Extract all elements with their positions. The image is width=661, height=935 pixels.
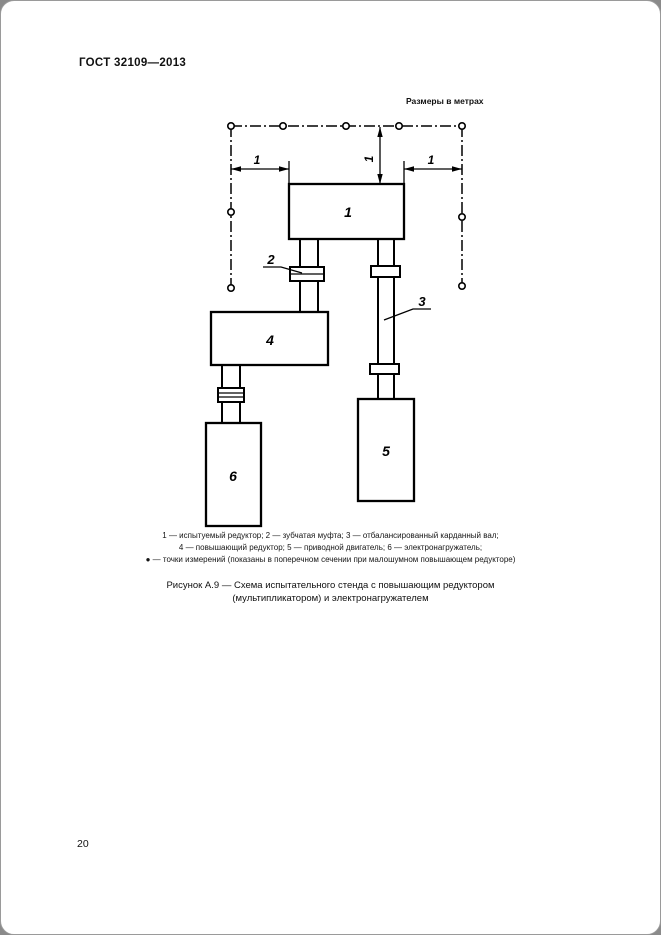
dimension-label-vertical: 1	[362, 155, 376, 162]
legend-line-3: ● — точки измерений (показаны в поперечн…	[1, 554, 660, 566]
dimension-label-right: 1	[428, 153, 435, 167]
callout-3-label: 3	[418, 294, 426, 309]
gear-coupling-2: 2	[263, 239, 324, 312]
cardan-shaft-3: 3	[370, 239, 431, 399]
figure-caption-line-1: Рисунок А.9 — Схема испытательного стенд…	[1, 580, 660, 593]
block-6-electric-loader: 6	[206, 423, 261, 526]
lower-coupling	[218, 365, 244, 423]
dimension-label-left: 1	[254, 153, 261, 167]
document-page: ГОСТ 32109—2013 Размеры в метрах	[0, 0, 661, 935]
block-4-step-up-gearbox: 4	[211, 312, 328, 365]
figure-legend: 1 — испытуемый редуктор; 2 — зубчатая му…	[1, 530, 660, 566]
block-5-label: 5	[382, 443, 390, 459]
callout-2-label: 2	[266, 252, 275, 267]
figure-caption-line-2: (мультипликатором) и электронагружателем	[1, 593, 660, 606]
block-1-tested-gearbox: 1	[289, 184, 404, 239]
legend-line-1: 1 — испытуемый редуктор; 2 — зубчатая му…	[1, 530, 660, 542]
test-stand-diagram: 1 1 1 1 2	[1, 1, 661, 935]
block-1-label: 1	[344, 204, 352, 220]
figure-caption: Рисунок А.9 — Схема испытательного стенд…	[1, 580, 660, 605]
page-number: 20	[77, 838, 89, 850]
block-5-drive-motor: 5	[358, 399, 414, 501]
legend-line-2: 4 — повышающий редуктор; 5 — приводной д…	[1, 542, 660, 554]
block-6-label: 6	[229, 468, 237, 484]
dimension-lines: 1 1 1	[231, 127, 462, 184]
block-4-label: 4	[265, 332, 274, 348]
